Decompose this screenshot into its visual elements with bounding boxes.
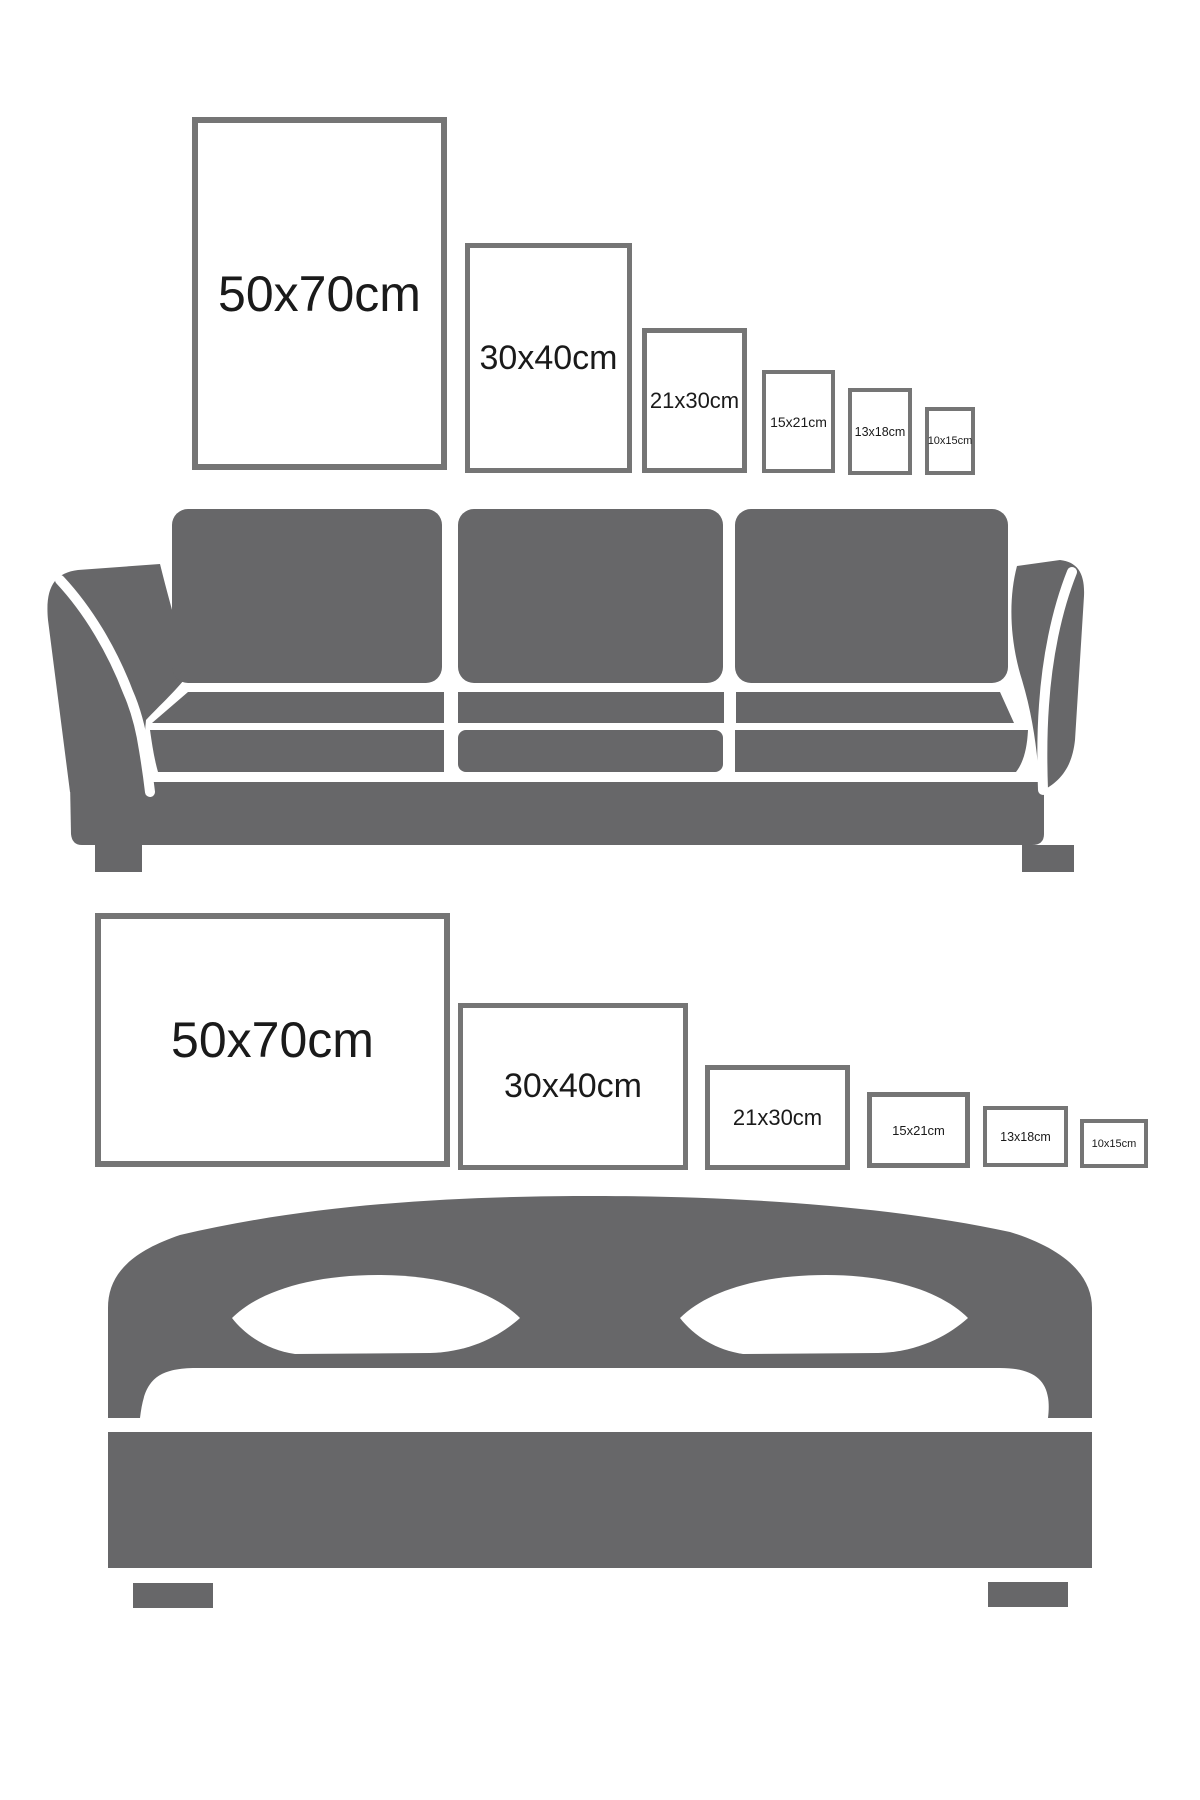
sofa-seat-cushion-left — [150, 730, 444, 772]
frame-15x21-portrait: 15x21cm — [762, 370, 835, 473]
frame-13x18-landscape: 13x18cm — [983, 1106, 1068, 1167]
frame-10x15-landscape: 10x15cm — [1080, 1119, 1148, 1168]
frame-size-label: 15x21cm — [892, 1123, 945, 1138]
sofa-base — [70, 782, 1044, 845]
frame-50x70-portrait: 50x70cm — [192, 117, 447, 470]
bed-left-foot — [133, 1583, 213, 1608]
frame-21x30-portrait: 21x30cm — [642, 328, 747, 473]
frame-size-label: 50x70cm — [171, 1011, 374, 1069]
frame-30x40-landscape: 30x40cm — [458, 1003, 688, 1170]
frame-15x21-landscape: 15x21cm — [867, 1092, 970, 1168]
frame-size-label: 10x15cm — [1092, 1138, 1137, 1150]
frame-size-label: 50x70cm — [218, 265, 421, 323]
frame-21x30-landscape: 21x30cm — [705, 1065, 850, 1170]
frame-size-label: 13x18cm — [1000, 1130, 1051, 1144]
bed-icon — [0, 1180, 1200, 1620]
sofa-seat-top-left — [152, 692, 444, 723]
size-guide-page: 50x70cm30x40cm21x30cm15x21cm13x18cm10x15… — [0, 0, 1200, 1800]
sofa-right-foot — [1022, 845, 1074, 872]
frame-size-label: 15x21cm — [770, 414, 827, 430]
frame-size-label: 30x40cm — [504, 1067, 642, 1106]
frame-50x70-landscape: 50x70cm — [95, 913, 450, 1167]
sofa-seat-top-middle — [458, 692, 724, 723]
sofa-icon — [0, 460, 1200, 880]
sofa-seat-cushion-middle — [458, 730, 723, 772]
frame-size-label: 10x15cm — [928, 435, 973, 447]
bed-base — [108, 1432, 1092, 1568]
sofa-seat-top-right — [736, 692, 1014, 723]
sofa-left-foot — [95, 845, 142, 872]
frame-size-label: 13x18cm — [855, 425, 906, 439]
sofa-back-cushion-middle — [458, 509, 723, 683]
sofa-back-cushion-left — [172, 509, 442, 683]
sofa-seat-cushion-right — [735, 730, 1028, 772]
frame-size-label: 21x30cm — [650, 388, 739, 414]
frame-size-label: 21x30cm — [733, 1105, 822, 1131]
sofa-back-cushion-right — [735, 509, 1008, 683]
frame-size-label: 30x40cm — [480, 339, 618, 378]
bed-right-foot — [988, 1582, 1068, 1607]
frame-30x40-portrait: 30x40cm — [465, 243, 632, 473]
